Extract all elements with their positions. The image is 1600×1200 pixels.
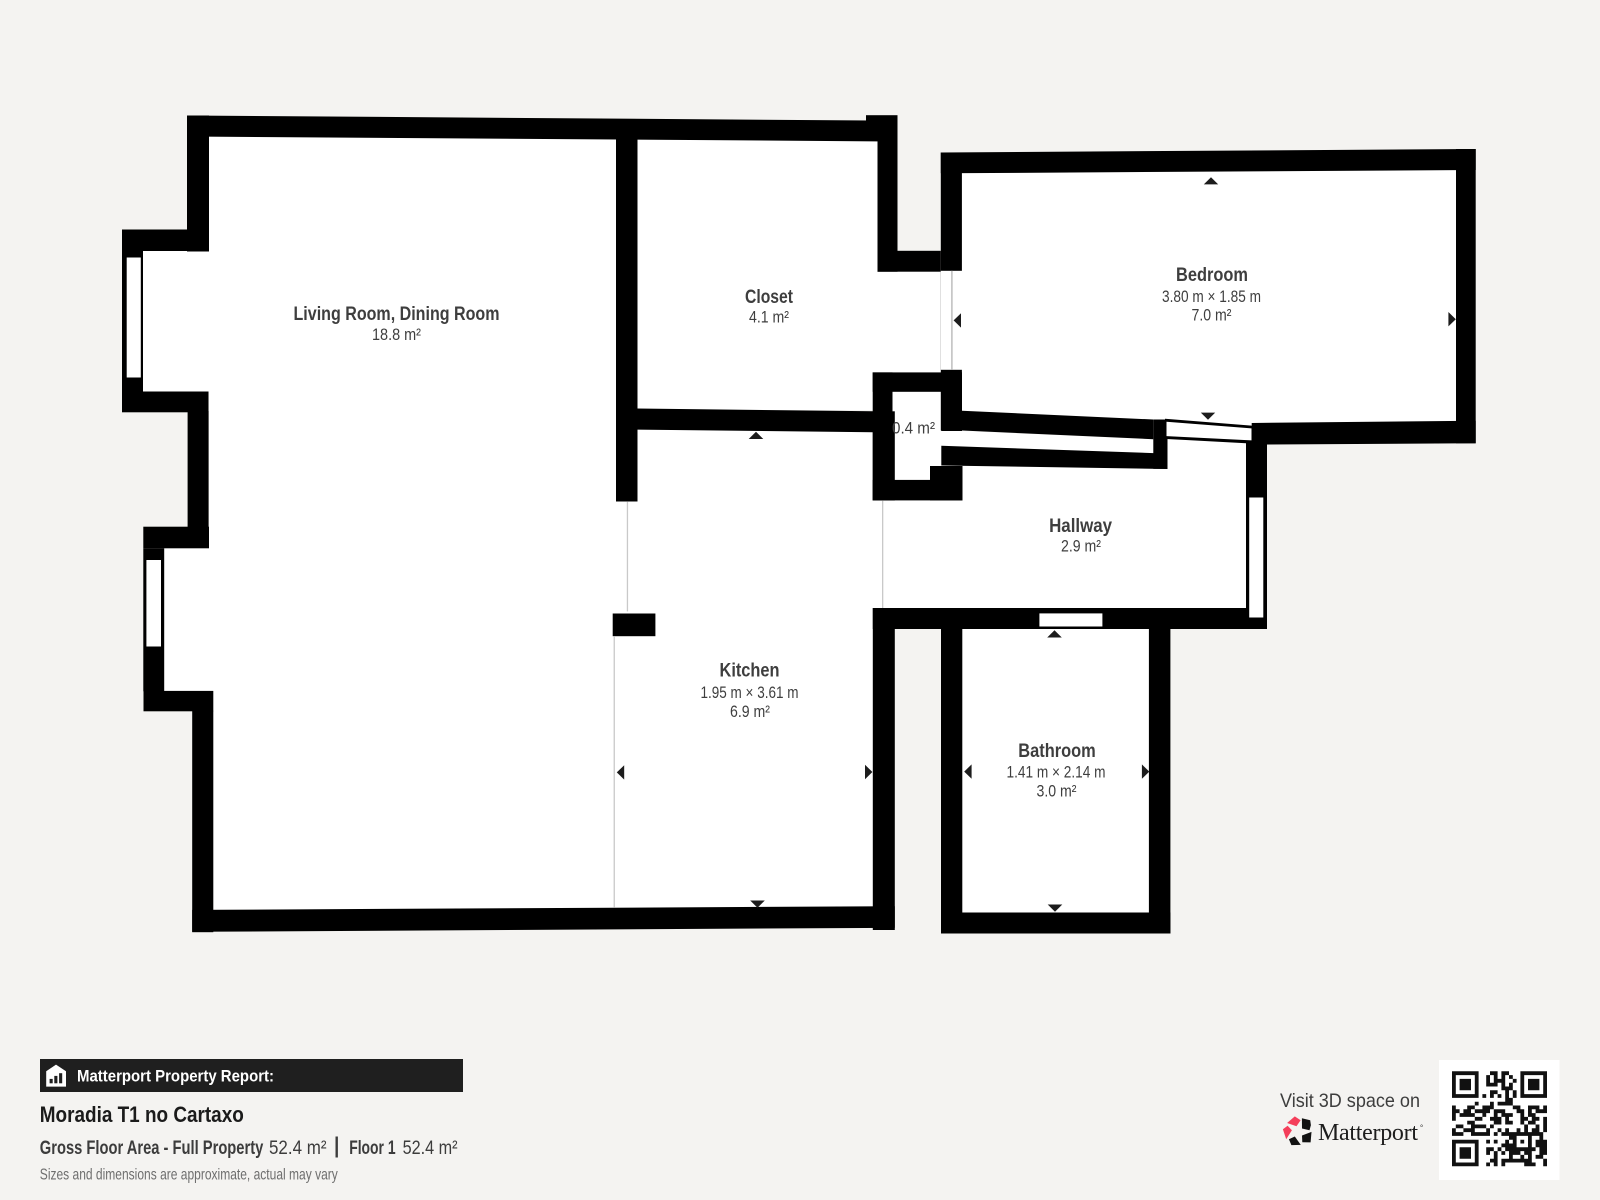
svg-text:18.8 m²: 18.8 m²: [372, 326, 421, 344]
svg-text:Hallway: Hallway: [1049, 516, 1112, 537]
svg-text:°: °: [1420, 1123, 1423, 1132]
svg-text:3.80 m × 1.85 m: 3.80 m × 1.85 m: [1162, 288, 1261, 306]
svg-text:Kitchen: Kitchen: [720, 661, 780, 682]
svg-text:52.4 m²: 52.4 m²: [269, 1138, 327, 1159]
svg-text:Closet: Closet: [745, 287, 794, 308]
svg-text:52.4 m²: 52.4 m²: [403, 1138, 458, 1159]
svg-text:Matterport: Matterport: [1318, 1120, 1418, 1146]
svg-text:Sizes and dimensions are appro: Sizes and dimensions are approximate, ac…: [40, 1167, 338, 1184]
svg-text:0.4 m²: 0.4 m²: [892, 420, 935, 438]
svg-text:1.95 m × 3.61 m: 1.95 m × 3.61 m: [701, 684, 799, 702]
svg-text:Living Room, Dining Room: Living Room, Dining Room: [294, 304, 500, 325]
svg-text:Matterport Property Report:: Matterport Property Report:: [77, 1067, 274, 1085]
svg-text:2.9 m²: 2.9 m²: [1061, 538, 1101, 556]
svg-text:4.1 m²: 4.1 m²: [749, 309, 789, 327]
svg-text:Bedroom: Bedroom: [1176, 265, 1248, 286]
svg-text:Bathroom: Bathroom: [1018, 741, 1096, 762]
svg-text:Moradia T1 no Cartaxo: Moradia T1 no Cartaxo: [40, 1102, 244, 1127]
svg-text:Gross Floor Area - Full Proper: Gross Floor Area - Full Property: [40, 1138, 264, 1159]
svg-text:6.9 m²: 6.9 m²: [730, 703, 770, 721]
svg-text:1.41 m × 2.14 m: 1.41 m × 2.14 m: [1007, 764, 1106, 782]
svg-text:7.0 m²: 7.0 m²: [1192, 306, 1232, 324]
svg-text:3.0 m²: 3.0 m²: [1037, 782, 1077, 800]
svg-text:Visit 3D space on: Visit 3D space on: [1280, 1090, 1420, 1112]
svg-text:Floor 1: Floor 1: [349, 1138, 396, 1159]
